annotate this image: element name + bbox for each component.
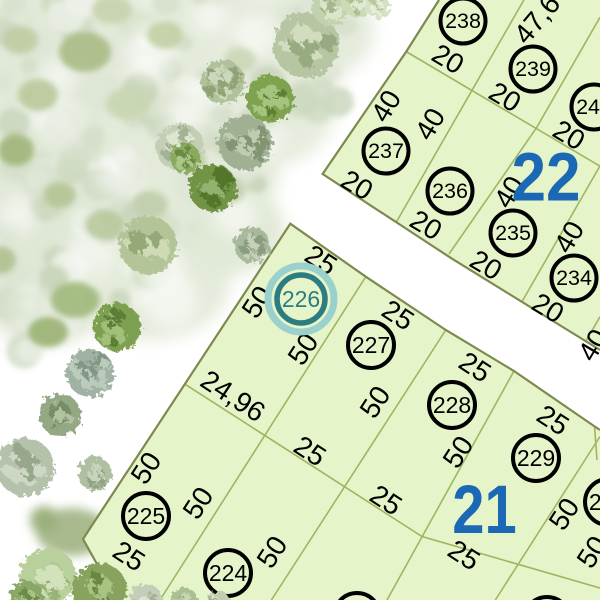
svg-text:237: 237 bbox=[368, 139, 404, 163]
svg-text:227: 227 bbox=[352, 332, 390, 358]
svg-text:240: 240 bbox=[576, 95, 600, 119]
svg-text:21: 21 bbox=[452, 470, 516, 548]
svg-text:224: 224 bbox=[209, 560, 248, 586]
svg-text:228: 228 bbox=[433, 392, 471, 418]
svg-text:226: 226 bbox=[282, 286, 320, 312]
svg-text:230: 230 bbox=[589, 489, 600, 515]
svg-text:229: 229 bbox=[517, 445, 555, 471]
svg-text:225: 225 bbox=[127, 503, 165, 529]
svg-text:236: 236 bbox=[432, 179, 468, 203]
svg-text:234: 234 bbox=[556, 266, 592, 290]
svg-text:235: 235 bbox=[495, 221, 531, 245]
svg-text:239: 239 bbox=[515, 57, 551, 81]
svg-text:238: 238 bbox=[445, 9, 481, 33]
svg-text:22: 22 bbox=[511, 139, 580, 216]
